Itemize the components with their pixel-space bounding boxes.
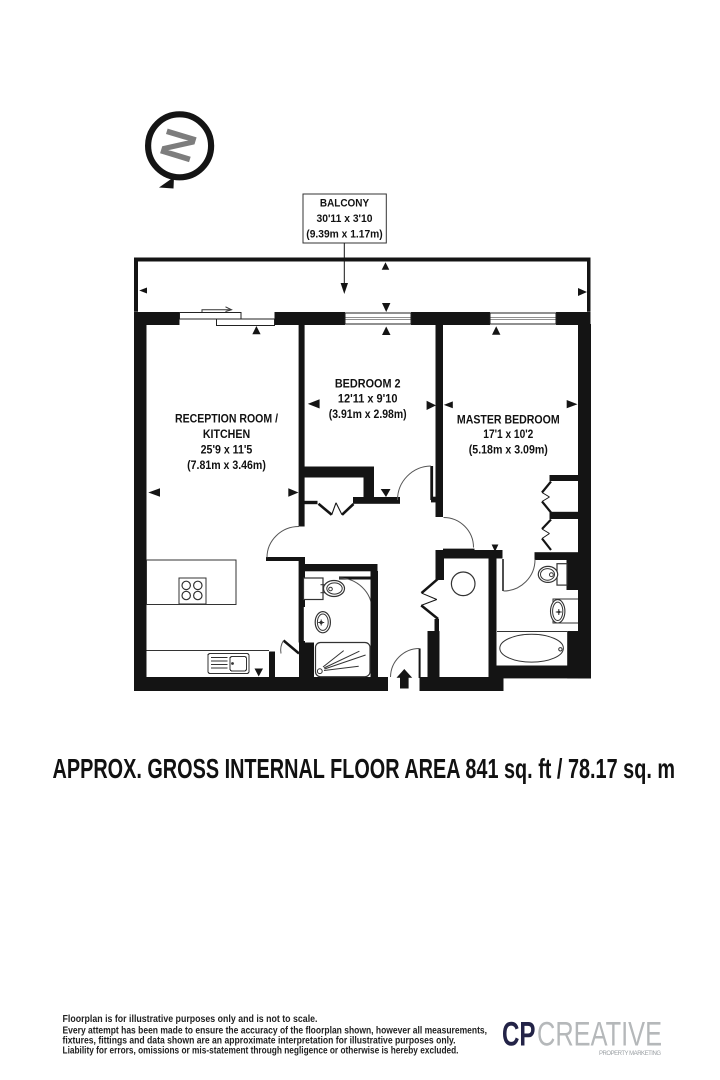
svg-text:(7.81m x 3.46m): (7.81m x 3.46m) [187, 460, 266, 472]
svg-text:17'1 x 10'2: 17'1 x 10'2 [483, 429, 533, 441]
svg-text:Liability for errors, omission: Liability for errors, omissions or mis-s… [63, 1045, 459, 1056]
svg-text:25'9 x 11'5: 25'9 x 11'5 [201, 445, 253, 457]
svg-text:(5.18m x 3.09m): (5.18m x 3.09m) [469, 445, 548, 457]
svg-text:CP: CP [502, 1015, 536, 1053]
svg-text:Floorplan is for illustrative: Floorplan is for illustrative purposes o… [63, 1014, 318, 1025]
svg-text:PROPERTY MARKETING: PROPERTY MARKETING [599, 1051, 661, 1057]
svg-text:CREATIVE: CREATIVE [537, 1015, 662, 1053]
svg-text:BEDROOM 2: BEDROOM 2 [335, 378, 401, 390]
svg-text:KITCHEN: KITCHEN [203, 429, 250, 441]
svg-text:30'11 x 3'10: 30'11 x 3'10 [317, 213, 373, 225]
svg-text:BALCONY: BALCONY [320, 198, 370, 210]
svg-text:(3.91m x 2.98m): (3.91m x 2.98m) [329, 409, 407, 421]
svg-text:12'11 x 9'10: 12'11 x 9'10 [338, 394, 398, 406]
svg-text:(9.39m x 1.17m): (9.39m x 1.17m) [306, 228, 383, 240]
svg-text:RECEPTION ROOM /: RECEPTION ROOM / [175, 414, 279, 426]
svg-text:APPROX. GROSS INTERNAL FLOOR A: APPROX. GROSS INTERNAL FLOOR AREA 841 sq… [53, 753, 676, 784]
svg-text:MASTER BEDROOM: MASTER BEDROOM [457, 415, 560, 427]
